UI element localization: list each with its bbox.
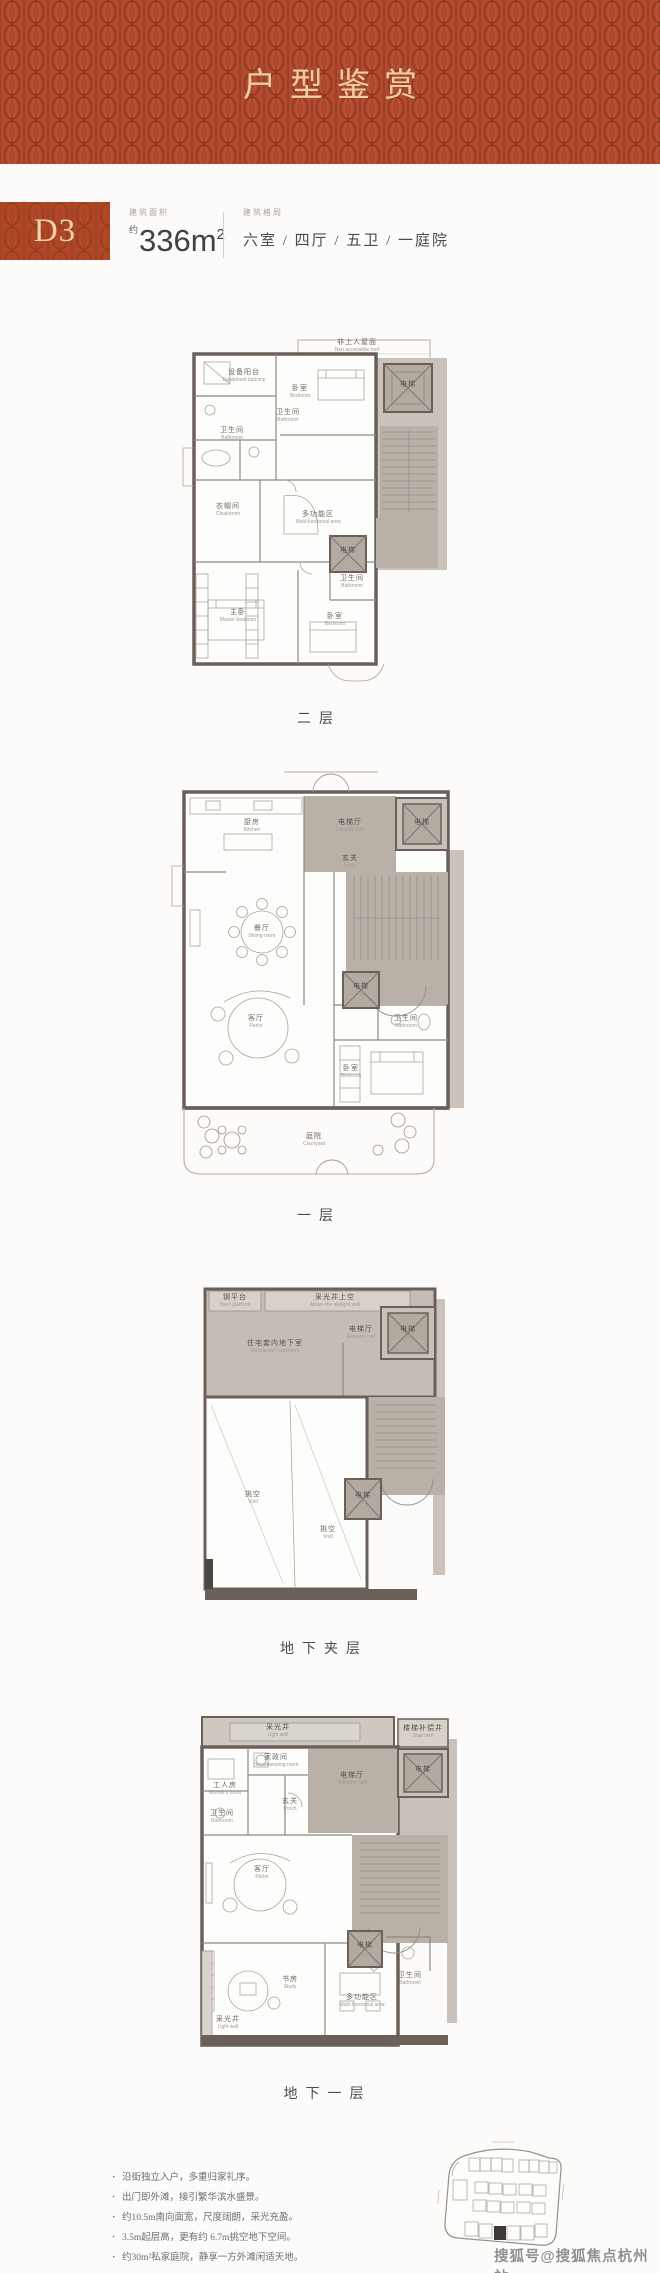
note-item: 沿街独立入户，多重归家礼序。	[112, 2168, 422, 2188]
header-divider	[223, 212, 224, 258]
note-item: 约10.5m南向面宽，尺度阔朗，采光充盈。	[112, 2208, 422, 2228]
room-label: 客厅Parlor	[254, 1865, 270, 1881]
layout-value: 六室 / 四厅 / 五卫 / 一庭院	[243, 229, 449, 250]
room-label: 电梯厅Elevator hall	[338, 1771, 366, 1787]
selling-points: 沿街独立入户，多重归家礼序。 出门即外滩，接引繁华滨水盛景。 约10.5m南向面…	[112, 2168, 422, 2268]
note-item: 出门即外滩，接引繁华滨水盛景。	[112, 2188, 422, 2208]
room-label: 卫生间Bathroom	[398, 1971, 422, 1987]
floor-plan-mezzanine: 钢平台Steel platform 采光井上空Above the skyligh…	[195, 1283, 445, 1613]
room-label: 楼梯补偿井Stair well	[403, 1724, 443, 1740]
room-label: 挑空Void	[245, 1490, 261, 1506]
room-label: 设备阳台Equipment balcony	[223, 368, 266, 384]
watermark: 搜狐号@搜狐焦点杭州站	[494, 2245, 660, 2273]
room-label: 卫生间Bathroom	[276, 408, 300, 424]
floor-caption-1f: 一层	[166, 1205, 464, 1225]
room-label: 客厅Parlor	[248, 1014, 264, 1030]
room-label: 电梯Lift	[400, 1325, 416, 1341]
room-label: 采光井上空Above the skylight well	[310, 1293, 361, 1309]
room-label: 电梯厅Elevator hall	[347, 1325, 375, 1341]
room-label: 卫生间Bathroom	[394, 1014, 418, 1030]
room-label: 多功能区Multi-functional area	[295, 510, 340, 526]
room-label: 电梯Lift	[340, 546, 356, 562]
room-label: 非上人屋面Non-accessible roof	[335, 338, 379, 354]
unit-badge: D3	[0, 202, 110, 260]
page: 户型鉴赏 D3 建筑面积 约336m2 建筑格局 六室 / 四厅 / 五卫 / …	[0, 0, 660, 2273]
floor-plan-b1-drawing	[190, 1713, 457, 2050]
room-label: 卧室Bedroom	[290, 384, 310, 400]
floor-plan-2f: 非上人屋面Non-accessible roof 设备阳台Equipment b…	[180, 330, 450, 687]
room-label: 工人房Worker's room	[209, 1781, 241, 1797]
room-label: 电梯厅Elevator hall	[336, 818, 364, 834]
room-label: 卧室Bedroom	[341, 1064, 361, 1080]
room-label: 电梯Lift	[355, 1491, 371, 1507]
room-label: 主卧Master bedroom	[220, 608, 256, 624]
floor-plan-b1: 采光井Light well 楼梯补偿井Stair well 家政间Houseke…	[190, 1713, 457, 2050]
room-label: 住宅套内地下室Residential basement	[247, 1339, 303, 1355]
unit-name: D3	[34, 213, 76, 250]
room-label: 卧室Bedroom	[325, 612, 345, 628]
room-label: 书房Study	[282, 1975, 298, 1991]
page-title: 户型鉴赏	[0, 0, 660, 164]
room-label: 卫生间Bathroom	[220, 426, 244, 442]
room-label: 卫生间Bathroom	[210, 1809, 234, 1825]
banner: 户型鉴赏	[0, 0, 660, 164]
room-label: 采光井Light well	[216, 2015, 240, 2031]
room-label: 玄关Porch	[342, 854, 358, 870]
site-map	[437, 2138, 569, 2261]
room-label: 厨房Kitchen	[244, 818, 261, 834]
room-label: 采光井Light well	[266, 1723, 290, 1739]
room-label: 电梯Lift	[400, 380, 416, 396]
area-value: 约336m2	[129, 223, 225, 259]
room-label: 衣帽间Cloakroom	[216, 502, 240, 518]
layout-block: 建筑格局 六室 / 四厅 / 五卫 / 一庭院	[243, 207, 449, 250]
room-label: 多功能区Multi-functional area	[339, 1993, 384, 2009]
room-label: 电梯Lift	[353, 982, 369, 998]
room-label: 挑空Void	[320, 1525, 336, 1541]
room-label: 家政间Housekeeping room	[254, 1753, 299, 1769]
room-label: 庭院Courtyard	[303, 1132, 325, 1148]
layout-label: 建筑格局	[243, 207, 449, 218]
floor-caption-b1: 地下一层	[190, 2083, 457, 2103]
floor-caption-2f: 二层	[180, 708, 450, 728]
room-label: 玄关Porch	[282, 1797, 298, 1813]
area-approx: 约	[129, 225, 138, 235]
room-label: 餐厅Dining room	[249, 924, 276, 940]
area-label: 建筑面积	[129, 207, 225, 218]
site-map-drawing	[437, 2138, 569, 2256]
floor-caption-mezzanine: 地下夹层	[195, 1638, 445, 1658]
note-item: 约30m²私家庭院，静享一方外滩闲适天地。	[112, 2248, 422, 2268]
room-label: 卫生间Bathroom	[340, 574, 364, 590]
room-label: 电梯Lift	[415, 1765, 431, 1781]
floor-plan-1f: 厨房Kitchen 电梯厅Elevator hall 电梯Lift 玄关Porc…	[166, 770, 464, 1180]
room-label: 电梯Lift	[357, 1941, 373, 1957]
room-label: 电梯Lift	[414, 818, 430, 834]
note-item: 3.5m起层高，更有约 6.7m挑空地下空间。	[112, 2228, 422, 2248]
room-label: 钢平台Steel platform	[220, 1293, 251, 1309]
area-block: 建筑面积 约336m2	[129, 207, 225, 259]
